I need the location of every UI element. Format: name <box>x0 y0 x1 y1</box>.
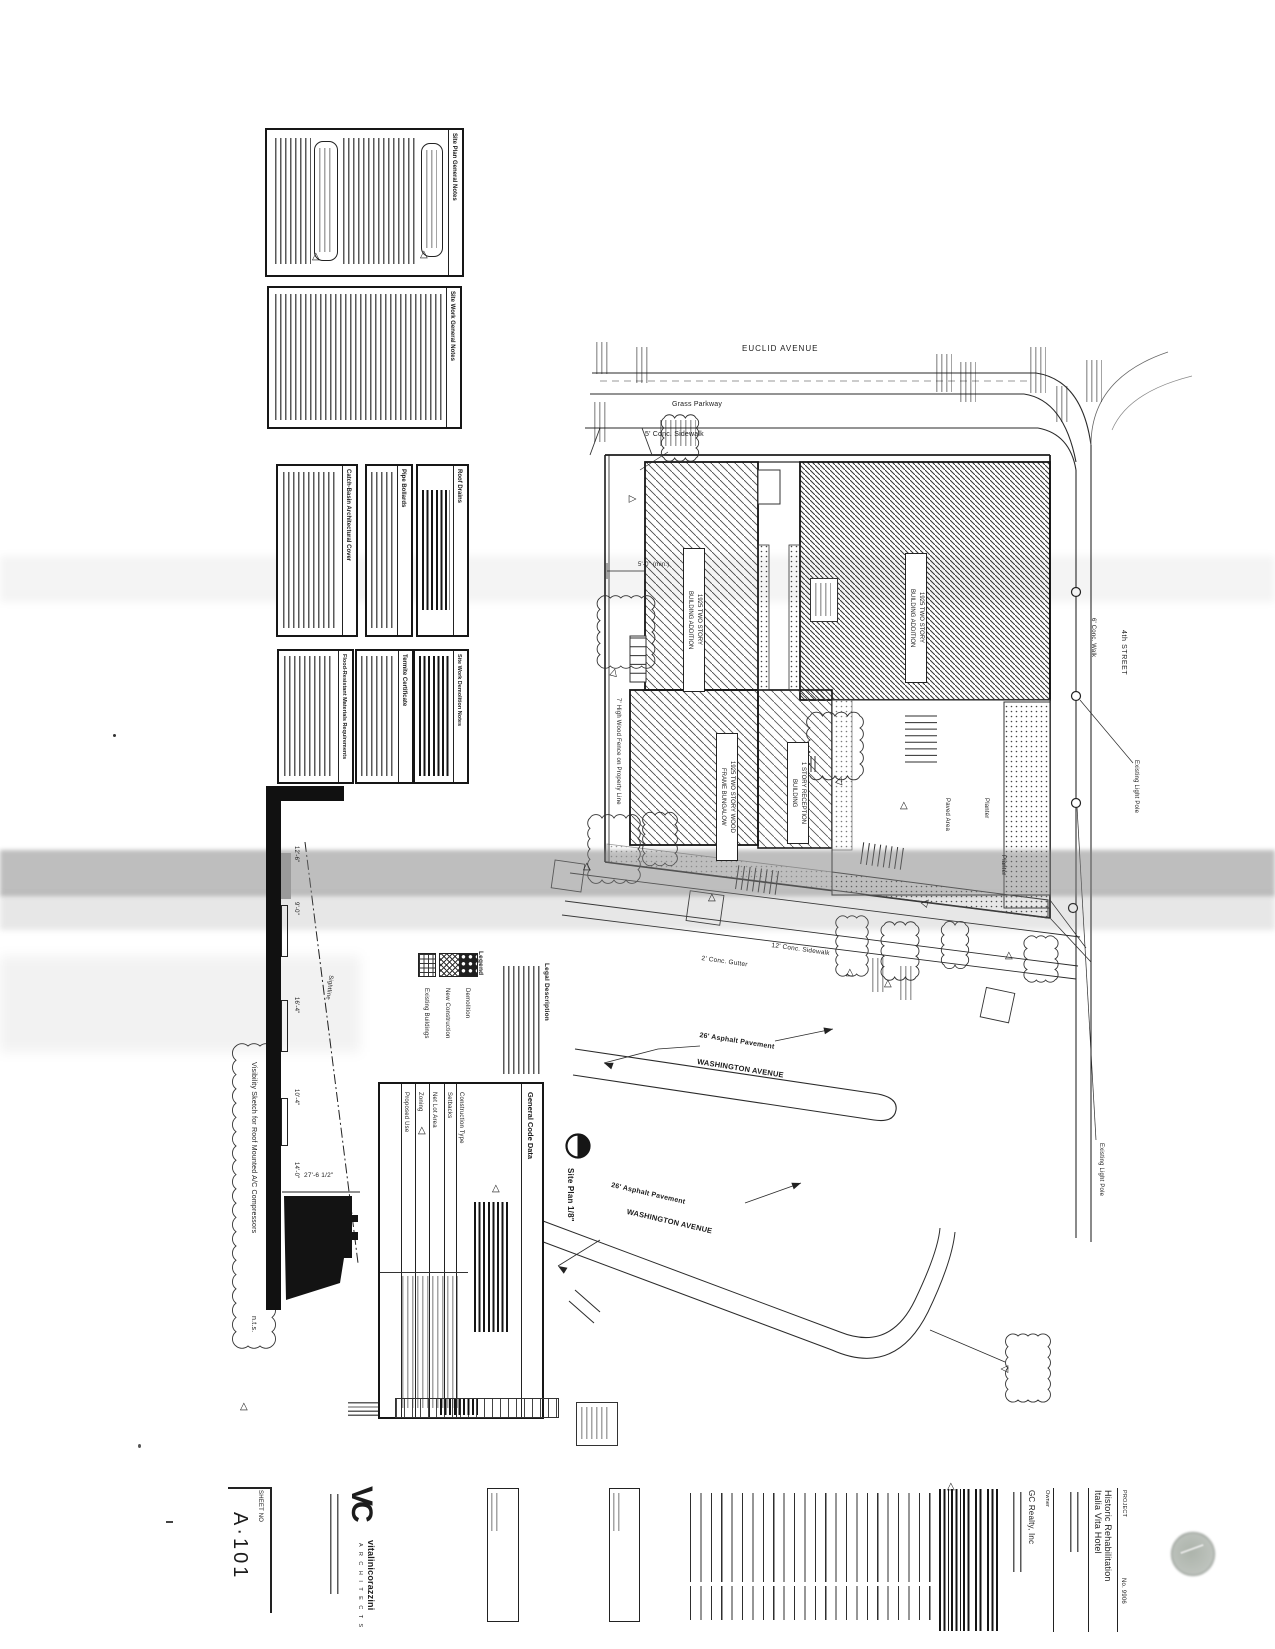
building-label-line: 1925 TWO STORY WOOD <box>727 736 736 858</box>
drawing-linework <box>0 0 1275 1649</box>
note-text-mock <box>581 1407 611 1439</box>
note-text-mock <box>343 138 415 264</box>
code-table-title-strip: General Code Data <box>521 1084 542 1417</box>
vis-window <box>281 1098 288 1146</box>
legal-title: Legal Description <box>543 963 550 1021</box>
street-right-lines <box>1076 445 1091 1242</box>
legend-item: Demolition <box>464 988 470 1018</box>
small-box <box>576 1402 618 1446</box>
label-walk-6: 6' Conc. Walk <box>1090 618 1096 657</box>
note-title-strip: Site Plan General Notes <box>448 130 462 275</box>
revision-entry-mock <box>939 1489 949 1631</box>
titleblock-rule <box>270 1487 272 1613</box>
titleblock-rule <box>1117 1488 1118 1632</box>
firm-name: vitalinicorazzini <box>366 1540 376 1610</box>
street-label-euclid: EUCLID AVENUE <box>742 344 818 353</box>
small-plan-tag <box>810 578 838 622</box>
code-text-mock <box>474 1202 508 1332</box>
titleblock-strip <box>609 1488 640 1622</box>
note-text-mock <box>275 294 443 420</box>
note-title-strip: Catch-Basin Architectural Cover <box>342 466 356 635</box>
note-title: Site Work General Notes <box>449 291 455 361</box>
note-title-strip: Site Work Demolition Notes <box>453 651 467 782</box>
strip-text-mock <box>348 1399 380 1416</box>
street-note-mock <box>636 347 650 383</box>
note-title: Site Plan General Notes <box>451 133 457 201</box>
owner-address-mock <box>1013 1492 1018 1572</box>
vis-title: Visibility Sketch for Roof Mounted A/C C… <box>250 1062 257 1233</box>
strip-text-mock <box>613 1493 622 1531</box>
project-label: PROJECT <box>1121 1490 1127 1517</box>
label-planter-2: Planter <box>1000 855 1006 875</box>
code-row-label: Zoning <box>417 1092 423 1112</box>
legal-text-mock <box>503 966 541 1074</box>
vis-dim: 10'-4" <box>293 1089 299 1105</box>
revision-delta-icon <box>846 968 854 978</box>
building-label-addition-right: 1925 TWO STORY BUILDING ADDITION <box>905 553 927 683</box>
code-row-label: Net Lot Area <box>431 1092 437 1128</box>
sheet-no-label: SHEET NO <box>257 1490 263 1522</box>
sheet-number: A·101 <box>228 1512 251 1580</box>
revision-delta-icon <box>418 1126 426 1136</box>
building-label-line: 1925 TWO STORY <box>694 551 703 689</box>
revision-delta-icon <box>708 893 716 903</box>
building-label-reception: 1 STORY RECEPTION BUILDING <box>787 742 809 844</box>
scan-speck <box>166 1521 173 1523</box>
vis-window <box>281 853 291 899</box>
project-address-mock <box>1070 1492 1075 1552</box>
titleblock-rule <box>228 1487 272 1489</box>
vis-dim: 16'-4" <box>293 997 299 1013</box>
note-title-strip: Pipe Bollards <box>397 466 411 635</box>
note-title: Site Work Demolition Notes <box>456 654 462 726</box>
legend-title: Legend <box>477 951 484 975</box>
note-box-small: Pipe Bollards <box>365 464 413 637</box>
vis-dim: 9'-0" <box>293 902 299 915</box>
note-text-mock <box>419 656 450 776</box>
vis-window <box>281 905 288 957</box>
street-note-mock <box>594 402 606 442</box>
revision-entry-mock <box>987 1489 998 1631</box>
revision-delta-icon <box>492 1184 500 1194</box>
revision-delta-icon <box>240 1402 248 1412</box>
label-light-pole-2: Existing Light Pole <box>1098 1143 1104 1196</box>
note-box-small: Roof Drains <box>416 464 469 637</box>
firm-address-mock <box>330 1494 335 1594</box>
plan-caption: Site Plan 1/8" <box>566 1168 575 1222</box>
strip-text-mock <box>491 1493 500 1531</box>
revision-delta-icon <box>1005 951 1013 961</box>
firm-type: A R C H I T E C T S <box>357 1543 363 1629</box>
code-text-mock <box>402 1276 458 1408</box>
street-note-mock <box>596 342 608 374</box>
vis-scale: n.t.s. <box>250 1316 257 1332</box>
street-note-mock <box>1086 360 1102 402</box>
building-label-line: BUILDING <box>789 745 798 841</box>
legend-swatch-grid <box>418 953 436 977</box>
building-label-line: 1925 TWO STORY <box>916 556 925 680</box>
note-text-mock <box>283 472 338 628</box>
building-label-line: 1 STORY RECEPTION <box>798 745 807 841</box>
building-label-bungalow: 1925 TWO STORY WOOD FRAME BUNGALOW <box>716 733 738 861</box>
label-grass-parkway: Grass Parkway <box>672 401 722 408</box>
approval-stamp <box>1171 1532 1215 1576</box>
street-note-mock <box>960 362 976 402</box>
generated-linework <box>1024 936 1058 982</box>
code-table-rule <box>380 1272 468 1273</box>
project-address-mock <box>1077 1492 1082 1552</box>
street-note-mock <box>1056 386 1070 422</box>
label-light-pole-1: Existing Light Pole <box>1133 760 1139 813</box>
note-title: Flood-Resistant Materials Requirements <box>341 654 347 759</box>
note-title: Roof Drains <box>456 469 462 503</box>
owner-name: GC Realty, Inc <box>1027 1490 1036 1544</box>
revision-table-lower <box>690 1586 938 1620</box>
street-note-mock <box>936 354 952 392</box>
building-label-line: FRAME BUNGALOW <box>718 736 727 858</box>
owner-label: Owner <box>1044 1490 1050 1507</box>
firm-logo: VC <box>344 1486 378 1518</box>
note-text-mock <box>815 583 831 616</box>
note-text-mock <box>275 138 311 264</box>
label-paved-area: Paved Area <box>944 798 950 831</box>
revision-delta-icon <box>583 862 591 872</box>
generated-linework <box>941 921 968 968</box>
note-title-strip: Flood-Resistant Materials Requirements <box>338 651 352 782</box>
revision-delta-icon <box>627 495 637 503</box>
note-box-small: Catch-Basin Architectural Cover <box>276 464 358 637</box>
code-row-label: Proposed Use <box>403 1092 409 1132</box>
light-pole-circles <box>1069 588 1081 913</box>
median-island <box>573 1049 896 1121</box>
project-title-line1: Historic Rehabilitation <box>1103 1490 1113 1582</box>
scanned-drawing-sheet: Site Plan General Notes Site Work Genera… <box>0 0 1275 1649</box>
code-table: General Code Data Proposed Use Zoning Ne… <box>378 1082 544 1419</box>
vis-wall-bar <box>266 786 281 1310</box>
vis-width-dim: 27'-6 1/2" <box>304 1172 333 1179</box>
building-label-line: BUILDING ADDITION <box>907 556 916 680</box>
revision-table-upper <box>690 1493 938 1582</box>
revision-entry-mock <box>963 1489 972 1631</box>
code-table-title: General Code Data <box>526 1092 535 1159</box>
revision-delta-icon <box>312 252 320 262</box>
vis-dim: 12'-6" <box>293 846 299 862</box>
note-title-strip: Roof Drains <box>453 466 467 635</box>
vis-black-mass <box>284 1196 358 1300</box>
revision-entry-mock <box>951 1489 961 1631</box>
note-box-small: Termite Certificate <box>355 649 414 784</box>
note-title: Termite Certificate <box>401 654 407 706</box>
vis-window <box>281 1000 288 1052</box>
code-row-label: Setbacks <box>446 1092 452 1118</box>
note-title: Pipe Bollards <box>400 469 406 507</box>
revision-delta-icon <box>900 801 908 811</box>
arrowhead-icon <box>556 1263 567 1274</box>
generated-linework <box>1006 1334 1051 1402</box>
dim-fence: 5'-0" (min.) <box>638 562 669 568</box>
street-note-mock <box>1030 347 1046 393</box>
scan-speck <box>113 734 116 737</box>
lower-street-lines <box>538 1221 1005 1362</box>
note-text-mock <box>371 472 395 628</box>
project-title-line2: Italia Vita Hotel <box>1093 1490 1103 1554</box>
arrowhead-icon <box>791 1180 802 1190</box>
note-title-strip: Termite Certificate <box>398 651 412 782</box>
titleblock-rule <box>1053 1488 1054 1632</box>
revision-delta-icon <box>1000 1365 1010 1373</box>
note-title: Catch-Basin Architectural Cover <box>345 469 351 561</box>
project-number: No. 9906 <box>1120 1578 1126 1604</box>
legend-item: New Construction <box>444 988 450 1039</box>
street-note-mock <box>900 966 912 1000</box>
label-planter-1: Planter <box>983 798 989 818</box>
legend-item: Existing Buildings <box>423 988 429 1039</box>
revision-delta-icon <box>420 250 428 260</box>
legend-swatch-crosshatch <box>439 953 460 977</box>
building-label-line: BUILDING ADDITION <box>685 551 694 689</box>
scan-speck <box>138 1444 141 1448</box>
note-text-mock <box>422 490 450 610</box>
firm-address-mock <box>337 1494 342 1594</box>
note-text-mock <box>319 148 332 252</box>
note-box-a: Site Plan General Notes <box>265 128 464 277</box>
ruled-strip-mock <box>440 1399 478 1415</box>
label-fence: 7' High Wood Fence on Property Line <box>615 698 621 805</box>
legend-swatch-solid <box>460 953 478 977</box>
titleblock-rule <box>1088 1488 1089 1632</box>
revision-cloud-pill <box>421 143 443 257</box>
revision-cloud-pill <box>314 141 338 261</box>
street-note-mock <box>872 958 884 992</box>
note-box-small: Flood-Resistant Materials Requirements <box>277 649 354 784</box>
code-row-label: Construction Type <box>458 1092 464 1144</box>
note-text-mock <box>426 150 437 248</box>
note-text-mock <box>284 656 334 776</box>
note-text-mock <box>361 656 395 776</box>
revision-delta-icon <box>884 979 892 989</box>
revision-delta-icon <box>947 1482 955 1492</box>
street-note-mock <box>660 420 696 446</box>
arrowhead-icon <box>823 1026 833 1035</box>
owner-address-mock <box>1020 1492 1025 1572</box>
note-box-small: Site Work Demolition Notes <box>413 649 469 784</box>
building-label-addition-left: 1925 TWO STORY BUILDING ADDITION <box>683 548 705 692</box>
street-label-4th: 4th STREET <box>1120 630 1127 675</box>
revision-entry-mock <box>975 1489 984 1631</box>
note-title-strip: Site Work General Notes <box>446 288 460 427</box>
vis-dim: 14'-0" <box>293 1162 299 1178</box>
north-arrow-icon <box>567 1135 590 1158</box>
titleblock-strip <box>487 1488 519 1622</box>
note-box-b: Site Work General Notes <box>267 286 462 429</box>
